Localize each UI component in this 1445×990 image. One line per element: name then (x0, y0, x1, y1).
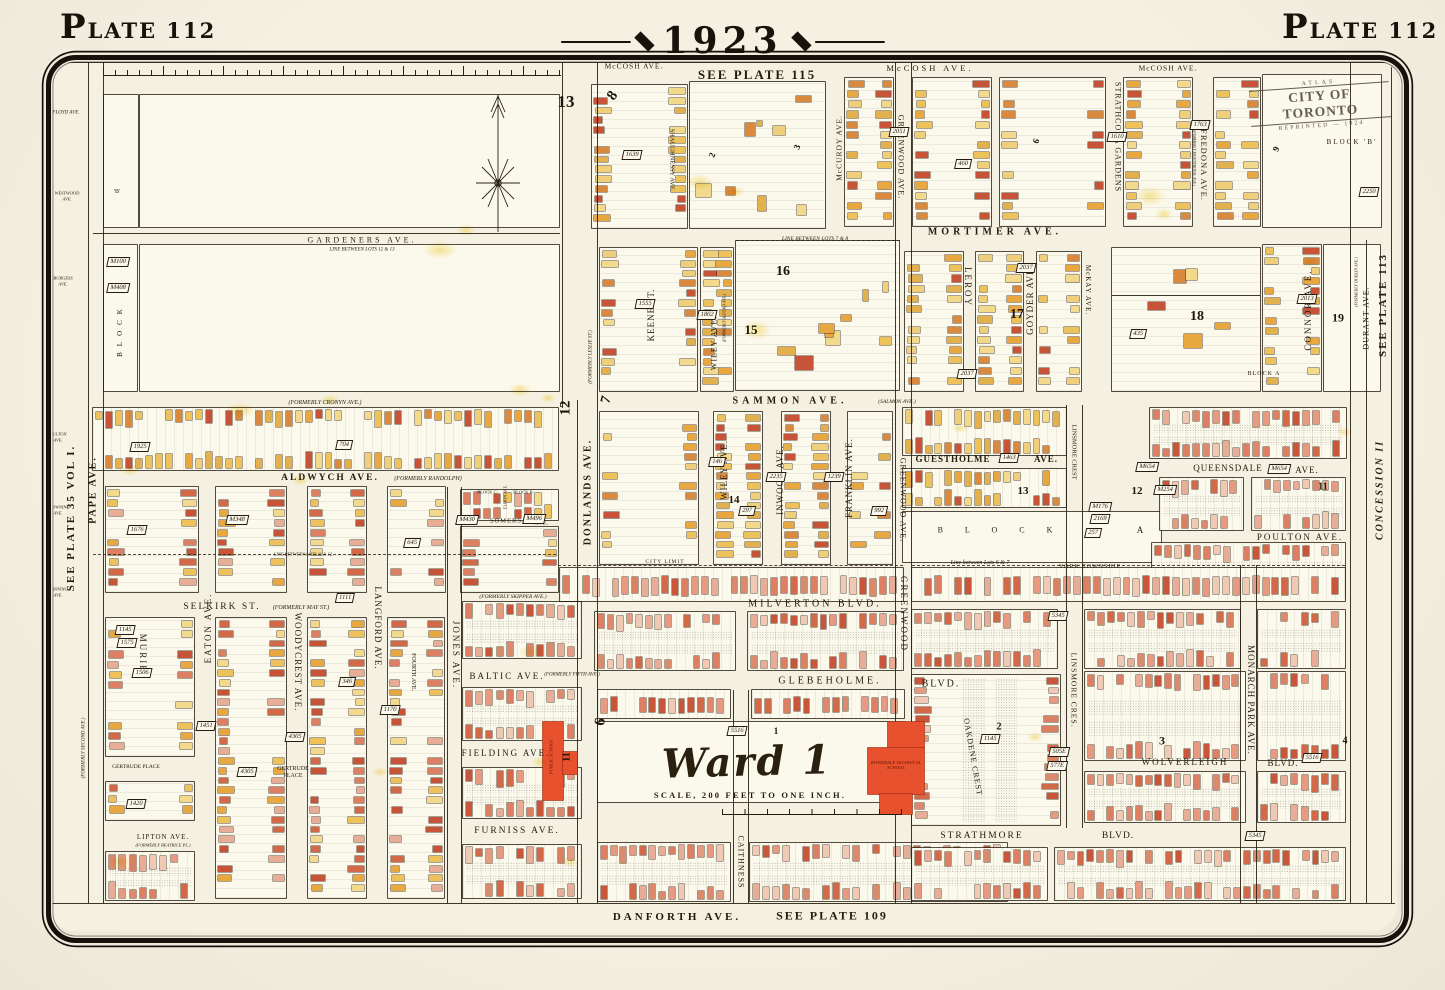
city-block (913, 78, 991, 226)
building (1223, 577, 1229, 594)
building (354, 768, 364, 774)
building (926, 473, 932, 487)
building (180, 559, 196, 565)
building (801, 577, 807, 594)
street-label: (FORMERLY LESLIE ST.) (589, 330, 594, 383)
building (1197, 651, 1203, 666)
building (925, 579, 931, 596)
building (1304, 258, 1319, 264)
building (758, 196, 766, 211)
building (655, 615, 661, 629)
building (476, 648, 482, 656)
plan-number-box: 4305 (284, 732, 305, 742)
building (277, 631, 284, 637)
building (181, 490, 196, 496)
building (220, 797, 231, 803)
building (833, 698, 839, 712)
building (219, 559, 232, 565)
building (823, 698, 829, 712)
watercolor-stain (540, 393, 556, 403)
building (611, 697, 617, 711)
building (465, 458, 471, 468)
building (1043, 446, 1049, 453)
building (1223, 774, 1229, 781)
building (1213, 775, 1219, 790)
building (713, 615, 719, 624)
building (1177, 122, 1190, 128)
building (602, 368, 609, 374)
building (1004, 101, 1014, 107)
building (751, 493, 760, 499)
building (975, 885, 981, 898)
building (218, 530, 227, 536)
building (545, 505, 551, 518)
building (427, 797, 442, 803)
plan-number-box: 1145 (115, 625, 136, 635)
building (495, 459, 501, 468)
building (1312, 614, 1318, 623)
street-label: WOODYCREST AVE. (293, 613, 303, 712)
building (427, 650, 442, 656)
building (110, 672, 122, 678)
year-ornament-right-icon (793, 39, 885, 44)
building (545, 454, 551, 468)
rowhouse-texture (1088, 721, 1242, 736)
building (1128, 659, 1134, 666)
building (1211, 515, 1217, 528)
building (1010, 357, 1021, 363)
building (1216, 182, 1232, 188)
building (1332, 745, 1338, 758)
building (180, 743, 192, 749)
building (926, 411, 932, 425)
building (116, 411, 122, 425)
building (1186, 269, 1197, 281)
building (675, 108, 685, 114)
building (698, 891, 704, 899)
building (745, 542, 760, 548)
block-number: 19 (1332, 311, 1344, 326)
building (811, 614, 817, 627)
building (178, 672, 192, 678)
building (392, 621, 406, 627)
rowhouse-texture (1261, 721, 1342, 736)
building (109, 723, 121, 729)
building (537, 884, 543, 896)
building (270, 540, 284, 546)
building (955, 444, 961, 453)
building (1068, 883, 1074, 898)
building (1003, 172, 1013, 178)
street-label: (FORMERLY RANDOLPH) (394, 476, 461, 482)
building (1064, 327, 1079, 333)
building (219, 748, 229, 754)
building (1217, 91, 1229, 97)
building (594, 127, 604, 133)
building (803, 889, 809, 899)
building (686, 464, 696, 470)
building (879, 454, 890, 460)
city-block (1055, 848, 1345, 900)
building (119, 889, 125, 898)
building (955, 410, 961, 424)
building (1322, 750, 1328, 758)
building (948, 296, 961, 302)
building (425, 458, 431, 468)
building (979, 357, 989, 363)
building (310, 510, 322, 516)
building (353, 758, 364, 764)
city-block (463, 845, 581, 898)
building (391, 778, 401, 784)
building (256, 411, 262, 425)
building (596, 108, 612, 114)
building (1193, 578, 1199, 595)
building (1128, 213, 1136, 219)
building (270, 490, 284, 496)
building (1281, 653, 1287, 666)
rowhouse-texture (915, 629, 1054, 639)
building (517, 604, 523, 614)
building (181, 733, 192, 739)
building (801, 616, 807, 625)
building (1108, 612, 1114, 621)
building (1213, 577, 1219, 594)
building (679, 699, 685, 713)
building (497, 604, 503, 618)
building (950, 265, 961, 271)
plan-number-box: 1420 (125, 799, 146, 809)
building (1194, 809, 1200, 820)
building (494, 508, 500, 518)
building (270, 621, 284, 627)
building (1024, 851, 1030, 866)
building (1261, 805, 1267, 820)
building (1068, 255, 1079, 261)
building (515, 411, 521, 421)
building (1211, 480, 1217, 492)
city-block (140, 245, 559, 391)
building (1040, 255, 1047, 261)
building (717, 503, 729, 509)
building (979, 296, 987, 302)
building (847, 122, 857, 128)
building (1322, 812, 1328, 820)
building (704, 280, 719, 286)
boundary-line (103, 62, 104, 903)
building (1176, 203, 1190, 209)
building (793, 888, 799, 899)
building (182, 520, 196, 526)
building (785, 532, 797, 538)
building (310, 738, 324, 744)
plan-number-box: 2235 (765, 472, 786, 482)
building (391, 885, 405, 891)
building (1233, 448, 1239, 456)
building (1204, 744, 1210, 758)
building (761, 579, 767, 596)
building (819, 532, 828, 538)
building (682, 579, 688, 596)
building (717, 542, 732, 548)
building (1107, 747, 1113, 758)
building (269, 856, 284, 862)
building (1292, 577, 1298, 594)
building (876, 91, 891, 97)
building (1155, 676, 1161, 686)
plan-number-box: 1610 (1106, 132, 1127, 142)
building (994, 886, 1000, 898)
building (812, 444, 828, 450)
building (527, 605, 533, 616)
building (1054, 579, 1060, 596)
building (428, 520, 443, 526)
plan-number-box: 297 (738, 506, 756, 516)
building (1002, 111, 1014, 117)
building (608, 615, 614, 629)
map-area: ATLAS CITY OF TORONTO REPRINTED — 1924 P… (48, 57, 1397, 931)
building (974, 152, 989, 158)
building (1244, 851, 1250, 864)
street-label: GLEBEHOLME. (778, 676, 881, 687)
city-of-toronto-stamp: ATLAS CITY OF TORONTO REPRINTED — 1924 (1248, 75, 1391, 134)
building (694, 656, 700, 668)
building (773, 887, 779, 899)
building (1004, 440, 1010, 453)
building (219, 500, 229, 506)
building (847, 111, 857, 117)
plan-number-box: 5516 (726, 726, 747, 736)
building (1224, 888, 1230, 898)
building (1227, 653, 1233, 666)
building (352, 621, 364, 627)
building (1213, 808, 1219, 820)
scale-bar (722, 804, 902, 815)
building (784, 444, 791, 450)
building (390, 836, 401, 842)
building (1272, 578, 1278, 595)
street-label: POULTON AVE. (1257, 532, 1343, 542)
building (1136, 806, 1142, 820)
building (108, 490, 119, 496)
building (464, 540, 480, 546)
street-label: McCOSH AVE. (605, 62, 664, 71)
building (365, 453, 371, 468)
city-block (600, 412, 698, 564)
building (640, 846, 646, 854)
plan-number-box: 346 (338, 677, 356, 687)
building (517, 691, 523, 700)
building (1127, 807, 1133, 820)
building (786, 542, 798, 548)
building (558, 889, 564, 896)
building (773, 846, 779, 853)
plan-number-box: 146 (708, 457, 726, 467)
street-label: GUESTHOLME (915, 454, 990, 464)
building (603, 280, 614, 286)
building (781, 658, 787, 668)
building (428, 758, 442, 764)
street-label: (FORMERLY ALFORD AVE.) (722, 294, 727, 342)
building (833, 883, 839, 899)
building (1332, 514, 1338, 528)
building (312, 631, 320, 637)
building (688, 698, 694, 712)
building (881, 142, 891, 148)
building (1187, 650, 1193, 666)
building (1042, 784, 1058, 790)
building (218, 699, 229, 705)
rowhouse-texture (1261, 642, 1342, 652)
street-label: (FORMERLY DUBLIN AVE.) (1354, 257, 1359, 307)
building (1233, 411, 1239, 423)
building (583, 576, 589, 593)
building (781, 614, 787, 622)
building (843, 889, 849, 899)
building (1313, 411, 1319, 424)
building (1136, 776, 1142, 787)
building (1127, 745, 1133, 758)
building (497, 691, 503, 698)
street-label: 'B' (114, 189, 120, 195)
building (1039, 378, 1050, 384)
building (1117, 675, 1123, 684)
building (1183, 412, 1189, 423)
building (431, 778, 442, 784)
street-label: GREENWOOD (899, 576, 909, 652)
building (1185, 545, 1191, 556)
building (568, 606, 574, 617)
rowhouse-texture (1088, 700, 1242, 715)
street-label: SEE PLATE 115 (698, 67, 816, 83)
building (761, 661, 767, 668)
plan-number-box: 2169 (1089, 514, 1110, 524)
building (1332, 852, 1338, 862)
building (109, 882, 115, 898)
building (1126, 182, 1137, 188)
building (1313, 447, 1319, 456)
building (904, 888, 910, 899)
building (717, 845, 723, 861)
building (1273, 886, 1279, 898)
building (466, 647, 472, 656)
building (935, 498, 941, 505)
building (980, 213, 989, 219)
building (463, 560, 478, 566)
building (355, 807, 364, 813)
building (1088, 203, 1103, 209)
compass-rose-icon (468, 88, 528, 238)
building (1293, 889, 1299, 898)
building (1182, 481, 1188, 494)
building (678, 196, 685, 202)
building (984, 884, 990, 898)
building (1332, 612, 1338, 626)
building (1127, 775, 1133, 784)
building (1312, 811, 1318, 820)
building (985, 412, 991, 421)
building (1303, 248, 1319, 254)
building (354, 797, 364, 803)
city-block (1258, 772, 1345, 822)
building (1165, 546, 1171, 557)
building (430, 690, 442, 696)
building (1012, 327, 1021, 333)
plan-number-box: 1111 (335, 593, 355, 603)
building (1146, 675, 1152, 687)
building (684, 444, 696, 450)
building (218, 540, 226, 546)
building (745, 123, 755, 136)
street-label: MILVERTON BLVD. (748, 599, 882, 610)
building (547, 579, 556, 585)
building (726, 187, 735, 195)
building (351, 490, 364, 496)
building (1213, 411, 1219, 423)
rowhouse-texture (1163, 507, 1240, 516)
building (1066, 275, 1079, 281)
building (433, 670, 442, 676)
street-label: JONES AVE. (451, 621, 461, 689)
building (1227, 613, 1233, 627)
city-block (1037, 252, 1081, 391)
building (218, 660, 228, 666)
building (982, 101, 989, 107)
building (596, 176, 612, 182)
building (718, 415, 725, 421)
ward-title: Ward 1 (661, 736, 832, 787)
building (1127, 132, 1142, 138)
building (642, 579, 648, 596)
building (385, 457, 391, 468)
building (1138, 654, 1144, 666)
building (1283, 447, 1289, 456)
building (860, 578, 866, 595)
building (1221, 481, 1227, 496)
boundary-line (1256, 565, 1257, 903)
building (655, 660, 661, 668)
building (744, 532, 760, 538)
building (1034, 411, 1040, 425)
building (1126, 172, 1139, 178)
building (717, 891, 723, 899)
building (761, 616, 767, 626)
city-block (216, 487, 286, 592)
building (355, 650, 364, 656)
building (1009, 378, 1021, 384)
building (183, 500, 196, 506)
city-block (595, 612, 735, 670)
city-block (216, 618, 286, 898)
building (1034, 439, 1040, 453)
city-block (106, 852, 194, 900)
block-number: 12 (1132, 485, 1143, 497)
building (975, 439, 981, 453)
building (429, 856, 442, 862)
building (311, 500, 319, 506)
building (1118, 656, 1124, 666)
building (126, 411, 132, 427)
lot-line-dashed (558, 565, 903, 566)
building (688, 845, 694, 858)
building (686, 493, 696, 499)
city-block (1000, 78, 1105, 226)
building (1221, 517, 1227, 528)
building (1004, 410, 1010, 421)
building (608, 660, 614, 668)
building (598, 614, 604, 628)
building (558, 606, 564, 620)
